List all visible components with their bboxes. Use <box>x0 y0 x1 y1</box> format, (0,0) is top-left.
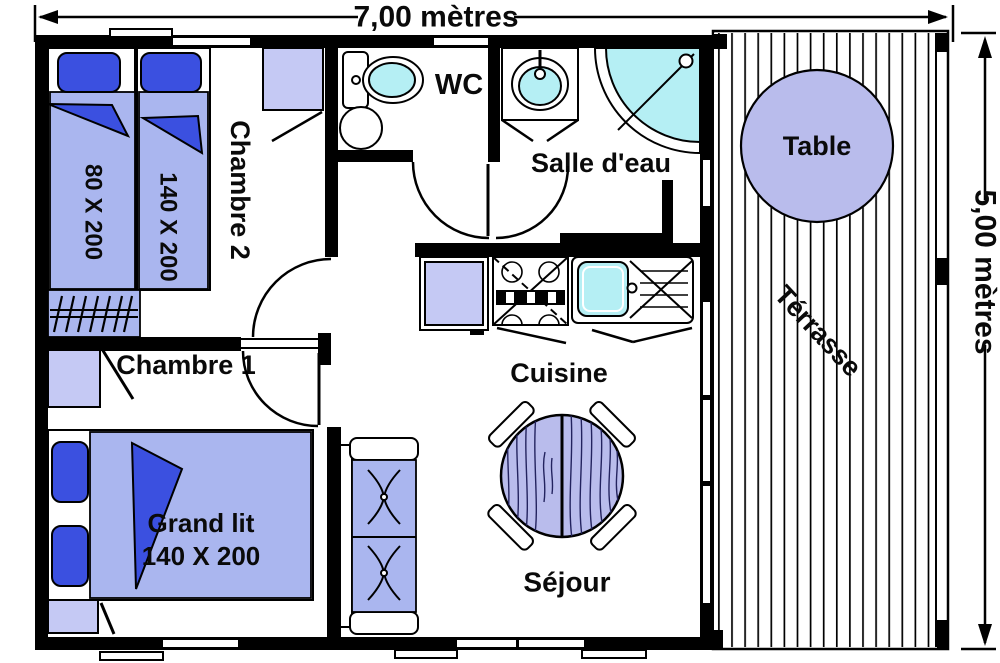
wall-chambre1-sejour <box>327 427 341 639</box>
terrasse-post <box>937 620 948 648</box>
grand-lit-name: Grand lit <box>148 508 255 538</box>
bed-double-140: 140 X 200 <box>137 48 210 290</box>
chambre1-label: Chambre 1 <box>116 350 256 380</box>
arrow-up <box>978 36 992 58</box>
nightstand <box>48 348 100 407</box>
window-sill <box>100 652 163 660</box>
window-salle-eau <box>703 160 710 206</box>
window-sill <box>582 650 646 658</box>
dimension-height: 5,00 mètres <box>961 33 1000 649</box>
wardrobe <box>48 290 140 337</box>
dining-set <box>486 400 637 552</box>
bed-double-size: 140 X 200 <box>155 172 182 281</box>
terrasse-table-label: Table <box>783 131 852 161</box>
arrow-down <box>978 624 992 646</box>
window-sill <box>110 29 172 37</box>
fridge <box>420 257 488 335</box>
grand-lit-size: 140 X 200 <box>142 541 261 571</box>
arrow-left <box>38 10 58 24</box>
terrasse-post <box>937 258 948 285</box>
wc-label: WC <box>435 69 483 101</box>
sink-faucet <box>628 284 637 293</box>
terrasse: Table Térrasse <box>713 31 948 649</box>
height-label: 5,00 mètres <box>969 189 1000 354</box>
terrasse-post <box>937 33 948 52</box>
cuisine-label: Cuisine <box>510 358 608 388</box>
sofa <box>336 438 418 634</box>
chambre2-label: Chambre 2 <box>225 120 255 260</box>
kitchen-sink <box>572 257 693 323</box>
wall-chambre2-hall <box>325 35 338 257</box>
bed-single-80: 80 X 200 <box>48 48 135 290</box>
stove <box>493 257 568 325</box>
shower-head <box>680 55 693 68</box>
salle-eau-label: Salle d'eau <box>531 148 671 178</box>
wall-stub <box>662 180 673 233</box>
footstool <box>48 600 98 633</box>
wall-wc-bottom <box>325 150 413 162</box>
terrasse-post <box>713 630 723 648</box>
nightstand <box>263 48 323 110</box>
wall-chambre1-chambre2 <box>35 337 241 351</box>
wall-wc-salle-eau <box>488 35 500 162</box>
width-label: 7,00 mètres <box>353 1 518 34</box>
window-sill <box>395 650 457 658</box>
arrow-right <box>928 10 948 24</box>
bed-single-size: 80 X 200 <box>80 164 107 260</box>
bay-window <box>703 302 710 603</box>
toilet-pedestal <box>340 107 382 149</box>
terrasse-post <box>713 34 727 49</box>
grand-lit: Grand lit 140 X 200 <box>48 430 313 600</box>
sejour-label: Séjour <box>523 567 610 598</box>
wall-salle-eau-bottom <box>560 233 673 247</box>
floor-plan: Table Térrasse 80 X 200 140 X 200 <box>0 0 1000 663</box>
faucet-head <box>535 69 545 79</box>
